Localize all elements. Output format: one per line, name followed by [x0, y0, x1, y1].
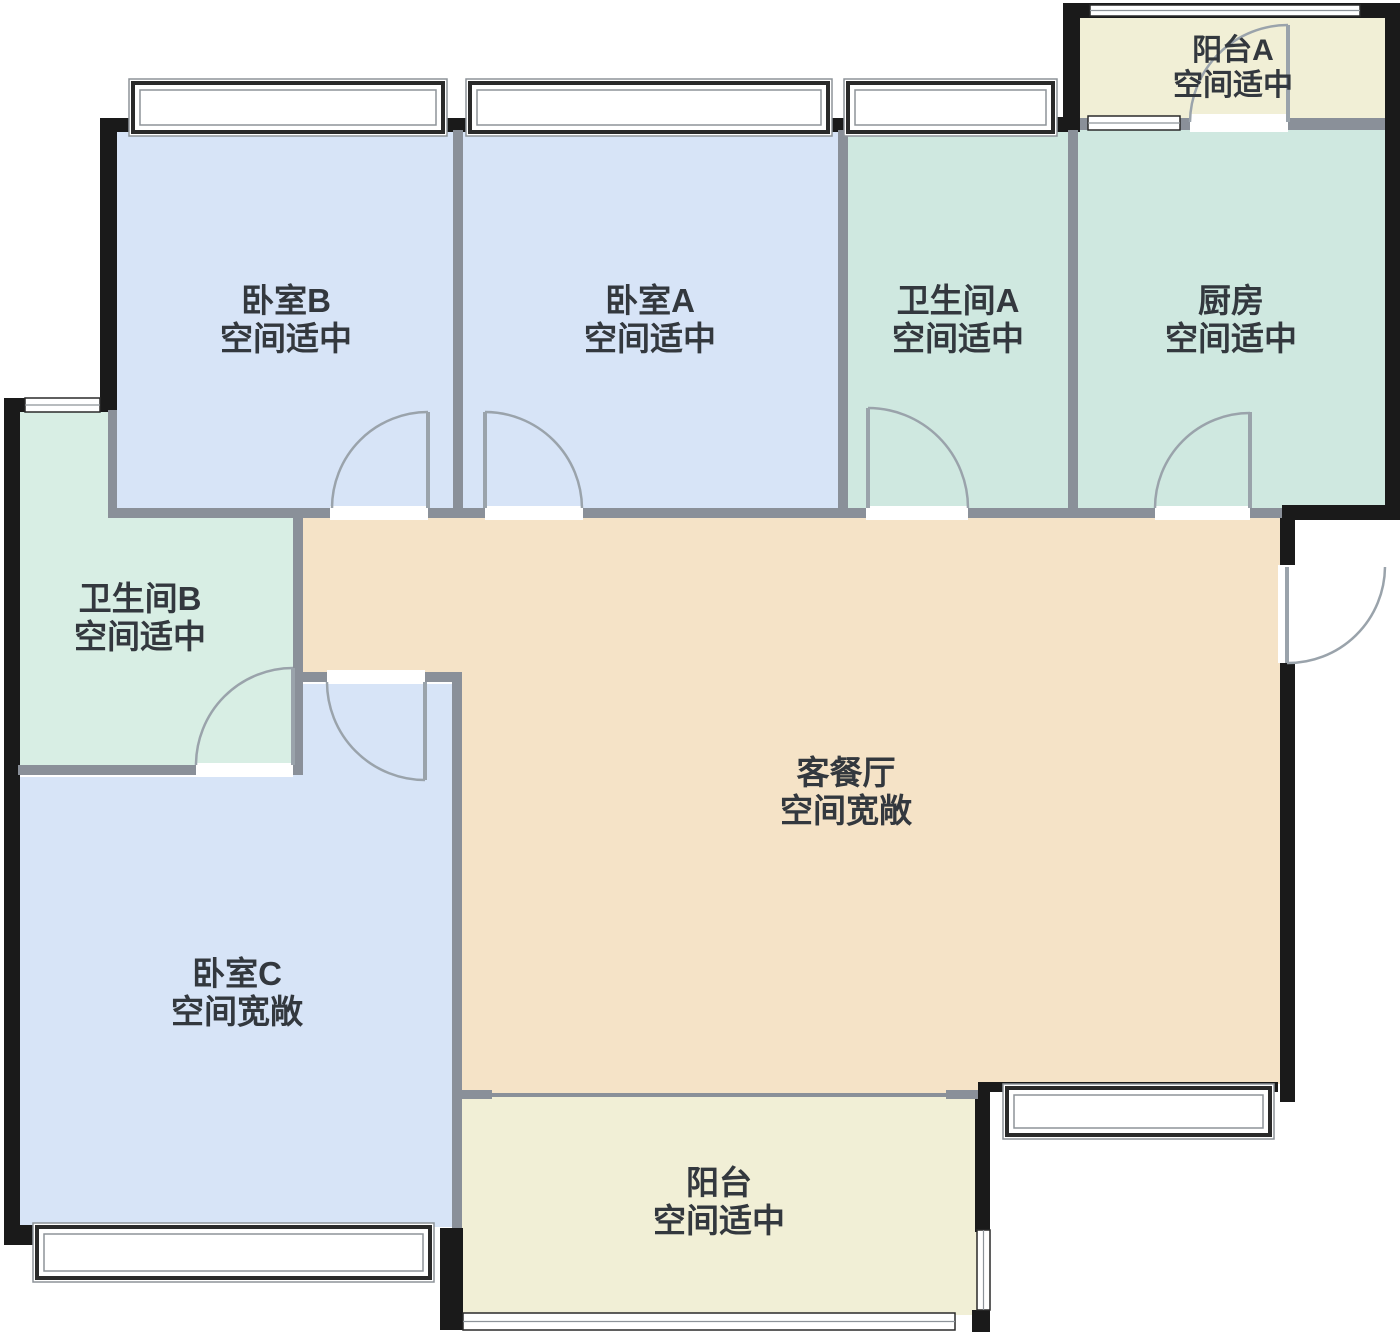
- room-bedroom-a-label-name: 卧室A: [605, 282, 695, 319]
- room-bathroom-a-floor: [846, 130, 1070, 508]
- room-bedroom-b-label-name: 卧室B: [241, 282, 331, 319]
- interior-wall: [583, 508, 868, 518]
- bedroom-b-door-opening: [330, 506, 428, 520]
- bedroom-a-door-opening: [485, 506, 583, 520]
- room-bedroom-a-floor: [461, 130, 840, 508]
- exterior-wall: [100, 118, 117, 412]
- exterior-wall: [1385, 3, 1400, 520]
- interior-wall: [460, 1093, 978, 1097]
- room-bedroom-b-label-status: 空间适中: [220, 320, 352, 357]
- exterior-wall: [4, 398, 20, 1245]
- room-bathroom-b-label-status: 空间适中: [74, 618, 206, 655]
- exterior-wall: [972, 1310, 990, 1332]
- room-balcony-a-label-status: 空间适中: [1173, 69, 1293, 102]
- interior-wall: [1288, 118, 1385, 130]
- exterior-wall: [1282, 505, 1400, 520]
- room-kitchen-label-name: 厨房: [1198, 282, 1264, 319]
- interior-wall: [838, 130, 848, 508]
- floor-plan: 卧室B空间适中卧室A空间适中卫生间A空间适中厨房空间适中阳台A空间适中卫生间B空…: [0, 0, 1400, 1335]
- kitchen-door-opening: [1155, 506, 1250, 520]
- room-bedroom-c-label-status: 空间宽敞: [171, 993, 304, 1030]
- interior-wall: [108, 508, 330, 518]
- exterior-wall: [1280, 513, 1295, 567]
- interior-wall: [452, 672, 462, 1228]
- interior-wall: [1080, 118, 1088, 130]
- bathroom-b-door-opening: [196, 763, 293, 777]
- exterior-wall: [1280, 663, 1295, 1102]
- room-bedroom-a-label-status: 空间适中: [584, 320, 716, 357]
- floor-plan-svg: 卧室B空间适中卧室A空间适中卫生间A空间适中厨房空间适中阳台A空间适中卫生间B空…: [0, 0, 1400, 1335]
- exterior-wall: [440, 1228, 463, 1330]
- interior-wall: [453, 130, 463, 508]
- bathroom-a-door-opening: [866, 506, 968, 520]
- exterior-wall: [975, 1092, 990, 1232]
- interior-wall: [108, 410, 117, 517]
- interior-wall: [1250, 508, 1282, 518]
- interior-wall: [18, 765, 196, 775]
- room-living-dining-label-name: 客餐厅: [797, 754, 896, 791]
- balcony-a-door-opening: [1190, 114, 1288, 132]
- room-living-dining-label-status: 空间宽敞: [780, 792, 913, 829]
- interior-wall: [293, 672, 327, 682]
- room-balcony-a-label-name: 阳台A: [1192, 33, 1274, 67]
- room-bathroom-a-label-status: 空间适中: [892, 320, 1024, 357]
- room-bedroom-b-floor: [117, 130, 455, 508]
- interior-wall: [968, 508, 1155, 518]
- interior-wall: [1068, 130, 1078, 508]
- entry-door-swing-arc: [1287, 567, 1385, 663]
- exterior-wall: [1063, 3, 1080, 120]
- room-balcony-label-status: 空间适中: [653, 1202, 785, 1239]
- room-bathroom-b-label-name: 卫生间B: [79, 580, 202, 617]
- room-bathroom-a-label-name: 卫生间A: [897, 282, 1020, 319]
- interior-wall: [1180, 118, 1190, 130]
- exterior-wall: [4, 1225, 34, 1245]
- room-bedroom-c-label-name: 卧室C: [192, 955, 282, 992]
- interior-wall: [428, 508, 485, 518]
- bedroom-c-door-opening: [327, 670, 425, 684]
- room-kitchen-label-status: 空间适中: [1165, 320, 1297, 357]
- room-balcony-label-name: 阳台: [686, 1164, 752, 1201]
